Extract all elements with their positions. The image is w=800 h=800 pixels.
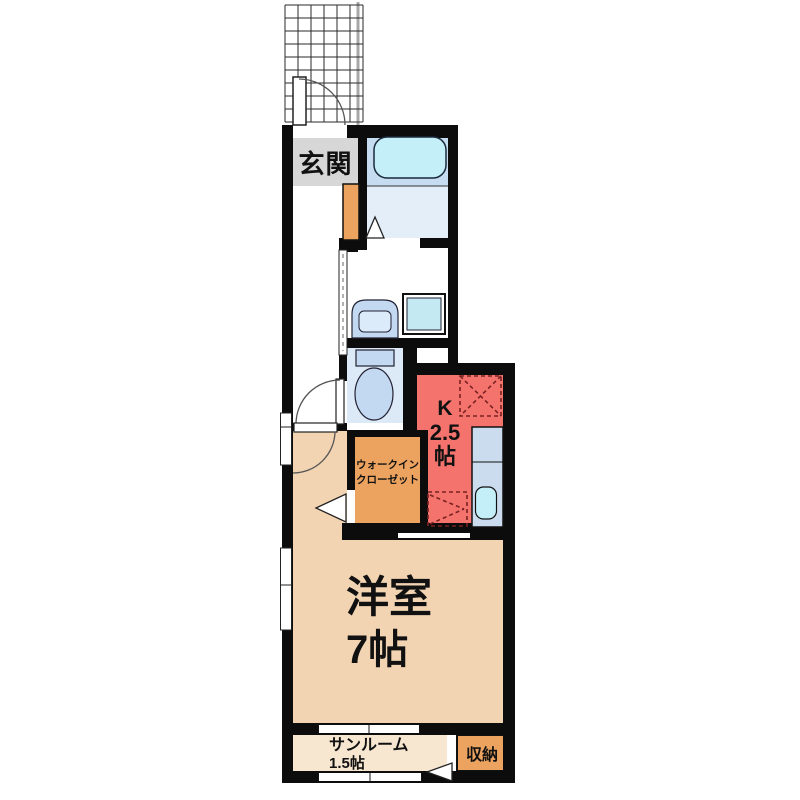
wall-toilet-right bbox=[403, 348, 417, 430]
kitchen-counter bbox=[472, 427, 503, 527]
washing-machine-pan bbox=[403, 294, 445, 334]
sunroom-size: 1.5帖 bbox=[329, 755, 409, 773]
kitchen-label-unit: 帖 bbox=[419, 445, 471, 469]
sunroom-label: サンルーム 1.5帖 bbox=[329, 737, 409, 773]
sunroom-lower-window bbox=[318, 772, 422, 783]
wic-label-line2: クローゼット bbox=[353, 473, 422, 488]
wall-right-upper bbox=[448, 125, 458, 375]
wall-right-lower bbox=[503, 363, 515, 783]
entrance-opening bbox=[293, 125, 347, 138]
toilet bbox=[355, 350, 394, 420]
kitchen-label: K 2.5 帖 bbox=[419, 397, 471, 469]
floor-plan-canvas: 玄関 K 2.5 帖 ウォークイン クローゼット 洋室 7帖 サンルーム 1.5… bbox=[0, 0, 800, 800]
wall-washroom-bottom bbox=[340, 338, 458, 348]
wic-label-line1: ウォークイン bbox=[353, 458, 422, 473]
sunroom-name: サンルーム bbox=[329, 737, 409, 755]
wall-hall-stub bbox=[339, 355, 347, 381]
washroom-sliding-door bbox=[339, 250, 347, 355]
kitchen-label-size: 2.5 bbox=[419, 421, 471, 445]
main-room-label: 洋室 7帖 bbox=[346, 572, 432, 676]
shoe-cabinet bbox=[343, 184, 359, 240]
sunroom-upper-window bbox=[318, 724, 420, 735]
kitchen-sink bbox=[476, 487, 497, 519]
toilet-door bbox=[296, 379, 344, 424]
left-wall-window-lower bbox=[281, 548, 292, 630]
walk-in-closet-label: ウォークイン クローゼット bbox=[353, 458, 422, 488]
floor-plan-graphics bbox=[0, 0, 800, 800]
storage-label: 収納 bbox=[457, 735, 507, 771]
bathtub bbox=[374, 137, 446, 178]
kitchen-label-k: K bbox=[419, 397, 471, 421]
left-wall-window-upper bbox=[281, 413, 292, 465]
main-room-size: 7帖 bbox=[346, 624, 432, 676]
washbasin bbox=[352, 300, 398, 338]
bathroom-door-opening bbox=[367, 238, 420, 248]
main-room-name: 洋室 bbox=[346, 572, 432, 624]
entrance-label: 玄関 bbox=[293, 138, 358, 186]
wall-kitchen-top bbox=[403, 363, 515, 375]
